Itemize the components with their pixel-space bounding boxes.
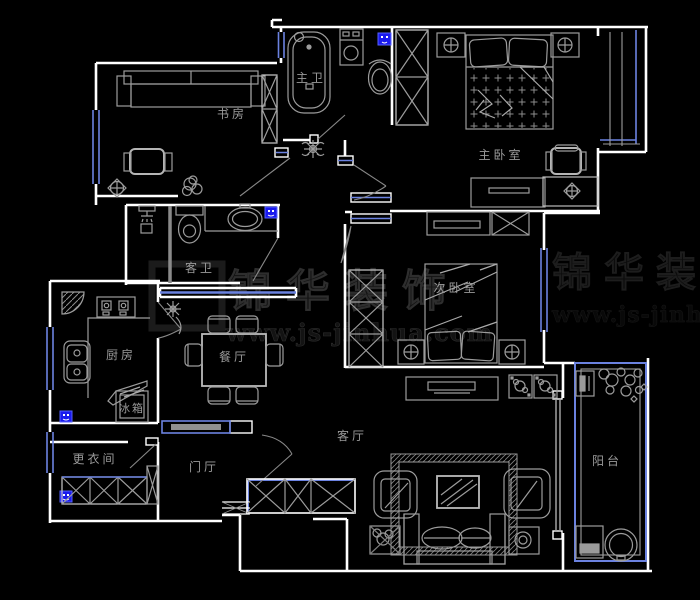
room-label-kitchen: 厨房 xyxy=(106,347,136,362)
socket-marker-icon xyxy=(378,33,391,45)
socket-marker-icon xyxy=(265,207,277,218)
watermark-brand-ghost: 锦华装饰 xyxy=(552,249,700,296)
room-label-study: 书房 xyxy=(217,106,247,121)
fridge-label: 冰箱 xyxy=(119,401,145,415)
room-label-dressing: 更衣间 xyxy=(72,451,117,466)
room-label-dining: 餐厅 xyxy=(219,349,249,364)
exhaust-fan-icon xyxy=(302,140,324,158)
room-label-living: 客厅 xyxy=(337,428,367,443)
room-label-master-bedroom: 主卧室 xyxy=(478,147,523,162)
floor-plan-canvas: 锦华装饰 锦华装饰 www.js-jinhua.com www.js-jinhu… xyxy=(0,0,700,600)
watermark-url-ghost: www.js-jinhua.com xyxy=(551,302,700,328)
room-label-second-bedroom: 次卧室 xyxy=(433,280,478,295)
room-label-balcony: 阳台 xyxy=(592,453,622,468)
floor-plan-page: 锦华装饰 锦华装饰 www.js-jinhua.com www.js-jinhu… xyxy=(0,0,700,600)
room-label-guest-bath: 客卫 xyxy=(185,260,215,275)
room-label-master-bath: 主卫 xyxy=(296,71,326,85)
room-label-foyer: 门厅 xyxy=(189,459,219,474)
socket-marker-icon xyxy=(60,411,72,422)
